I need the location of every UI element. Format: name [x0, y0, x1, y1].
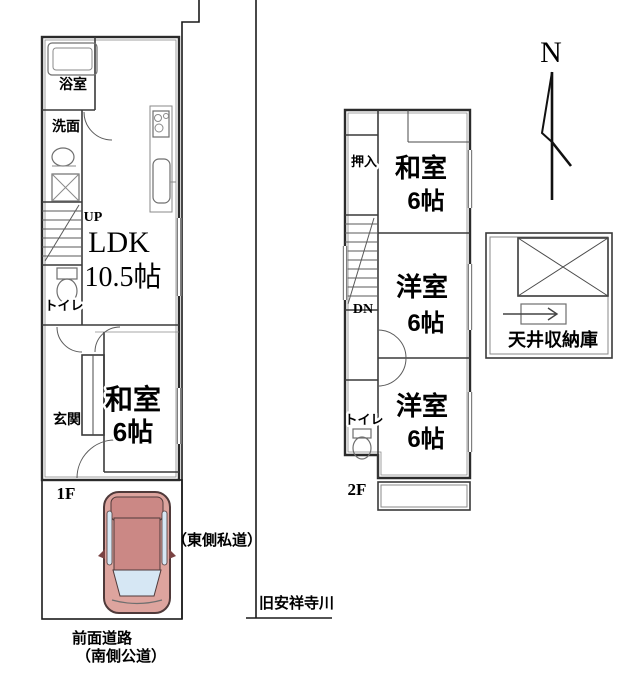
label-entrance: 玄関	[53, 411, 81, 427]
label-ldk-size: 10.5帖	[84, 261, 161, 293]
floor1-plan: 浴室 洗面 UP LDK 10.5帖 トイレ 玄関 和室 6帖 1F	[42, 37, 181, 503]
label-western1: 洋室	[396, 272, 448, 302]
stairs-2f	[345, 218, 378, 304]
label-bath: 浴室	[59, 76, 87, 92]
label-front-road-2: （南側公道）	[76, 647, 166, 665]
east-road-boundary	[246, 0, 332, 618]
car-mirror-left	[98, 549, 105, 559]
floor2-plan: 押入 和室 6帖 DN 洋室 6帖 洋室 6帖 トイレ 2F	[343, 110, 471, 510]
north-compass: N	[540, 36, 571, 200]
car-mirror-right	[169, 549, 176, 559]
label-washitsu-1f-size: 6帖	[113, 417, 153, 447]
label-stairs-up: UP	[84, 210, 103, 225]
label-floor2: 2F	[348, 480, 367, 499]
attic-hatch-icon	[518, 238, 608, 296]
label-ldk: LDK	[88, 226, 150, 259]
label-river: 旧安祥寺川	[259, 594, 334, 612]
car-side-window-left	[107, 511, 112, 565]
label-washitsu-2f-size: 6帖	[407, 188, 444, 215]
car-side-window-right	[162, 511, 167, 565]
car-roof	[114, 518, 160, 570]
washbasin-icon	[52, 148, 76, 166]
door-arc-room2	[378, 358, 406, 386]
label-attic: 天井収納庫	[508, 329, 598, 350]
label-front-road: 前面道路	[72, 629, 133, 647]
door-arc-hall-left	[57, 327, 82, 352]
kitchen-icon	[150, 106, 176, 212]
bathtub-icon	[48, 43, 97, 75]
attic-storage: 天井収納庫	[486, 233, 612, 358]
label-oshiire: 押入	[351, 154, 377, 169]
door-arc-washroom	[84, 112, 112, 140]
car-illustration	[98, 492, 176, 613]
door-arc-hall-right	[95, 327, 120, 352]
label-western1-size: 6帖	[407, 310, 444, 337]
attic-access-arrow-icon	[503, 304, 566, 324]
washing-machine-icon	[52, 174, 79, 201]
floor-plan-page: 浴室 洗面 UP LDK 10.5帖 トイレ 玄関 和室 6帖 1F	[0, 0, 642, 688]
north-arrow-icon	[542, 72, 571, 200]
label-western2: 洋室	[396, 391, 448, 421]
door-arc-room1	[378, 330, 406, 358]
label-washitsu-2f: 和室	[395, 153, 447, 183]
stairs-1f	[42, 205, 82, 261]
label-toilet-1f: トイレ	[44, 298, 83, 313]
label-western2-size: 6帖	[407, 426, 444, 453]
label-toilet-2f: トイレ	[344, 412, 383, 427]
wall-2f-washitsu-closet	[408, 110, 470, 142]
car-rear-window	[111, 497, 163, 521]
label-washitsu-1f: 和室	[105, 383, 161, 415]
label-east-road: （東側私道）	[172, 531, 262, 549]
label-washroom: 洗面	[52, 118, 80, 134]
car-windshield	[113, 570, 161, 596]
boundary-step-line	[182, 0, 199, 37]
floor-plan-drawing: 浴室 洗面 UP LDK 10.5帖 トイレ 玄関 和室 6帖 1F	[0, 0, 642, 688]
north-label: N	[540, 36, 562, 69]
label-floor1: 1F	[57, 484, 76, 503]
balcony-2f	[378, 482, 470, 510]
label-stairs-down: DN	[353, 302, 373, 317]
